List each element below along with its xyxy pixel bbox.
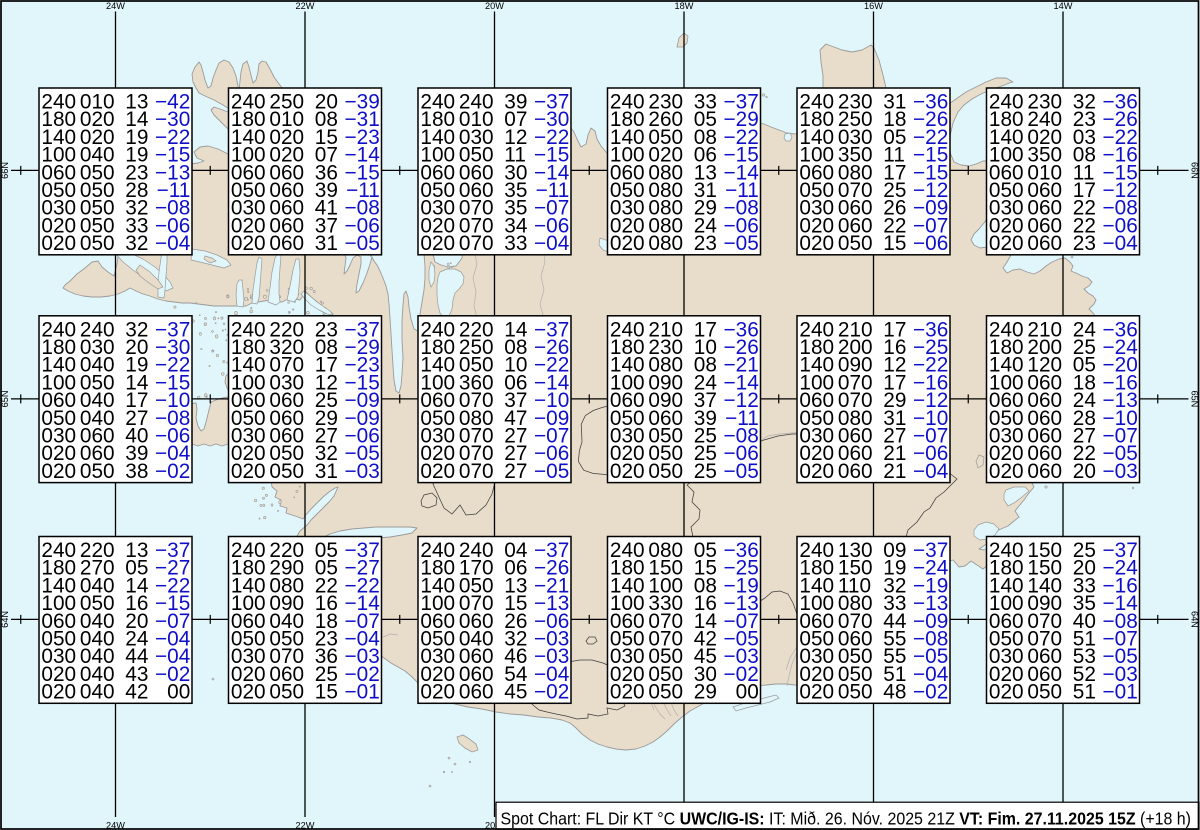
svg-text:−05: −05 xyxy=(534,460,569,483)
svg-text:−04: −04 xyxy=(1103,232,1138,255)
svg-text:33: 33 xyxy=(504,232,527,255)
svg-text:020: 020 xyxy=(231,232,266,255)
svg-text:020: 020 xyxy=(989,681,1024,704)
svg-text:040: 040 xyxy=(80,681,115,704)
svg-text:−01: −01 xyxy=(345,681,380,704)
svg-text:020: 020 xyxy=(231,681,266,704)
svg-text:24W: 24W xyxy=(106,1,125,11)
svg-text:23: 23 xyxy=(1073,232,1096,255)
svg-text:−05: −05 xyxy=(345,232,380,255)
svg-text:−01: −01 xyxy=(1103,681,1138,704)
svg-text:20W: 20W xyxy=(485,1,504,11)
svg-text:050: 050 xyxy=(648,681,683,704)
svg-text:020: 020 xyxy=(610,460,645,483)
svg-text:45: 45 xyxy=(504,681,527,704)
svg-text:14W: 14W xyxy=(1054,1,1073,11)
svg-text:020: 020 xyxy=(799,232,834,255)
svg-text:020: 020 xyxy=(799,681,834,704)
svg-text:050: 050 xyxy=(80,232,115,255)
svg-text:−03: −03 xyxy=(1103,460,1138,483)
svg-text:22W: 22W xyxy=(296,1,315,11)
svg-text:060: 060 xyxy=(838,460,873,483)
svg-text:050: 050 xyxy=(838,681,873,704)
svg-text:51: 51 xyxy=(1073,681,1096,704)
svg-text:32: 32 xyxy=(125,232,148,255)
svg-text:38: 38 xyxy=(125,460,148,483)
svg-text:070: 070 xyxy=(459,460,494,483)
svg-text:060: 060 xyxy=(459,681,494,704)
svg-text:−02: −02 xyxy=(534,681,569,704)
svg-text:050: 050 xyxy=(269,681,304,704)
svg-text:080: 080 xyxy=(648,232,683,255)
svg-text:−03: −03 xyxy=(345,460,380,483)
svg-text:−02: −02 xyxy=(913,681,948,704)
svg-text:020: 020 xyxy=(610,232,645,255)
svg-text:050: 050 xyxy=(648,460,683,483)
svg-text:020: 020 xyxy=(989,232,1024,255)
svg-text:15: 15 xyxy=(883,232,906,255)
svg-text:21: 21 xyxy=(883,460,906,483)
svg-text:070: 070 xyxy=(459,232,494,255)
svg-text:020: 020 xyxy=(799,460,834,483)
svg-text:31: 31 xyxy=(315,232,338,255)
svg-text:25: 25 xyxy=(694,460,717,483)
svg-text:020: 020 xyxy=(231,460,266,483)
svg-text:27: 27 xyxy=(504,460,527,483)
svg-text:−04: −04 xyxy=(913,460,948,483)
svg-text:020: 020 xyxy=(41,460,76,483)
svg-text:16W: 16W xyxy=(864,1,883,11)
svg-text:−06: −06 xyxy=(913,232,948,255)
svg-text:−04: −04 xyxy=(155,232,190,255)
svg-text:020: 020 xyxy=(420,460,455,483)
svg-text:00: 00 xyxy=(167,681,190,704)
svg-text:020: 020 xyxy=(41,232,76,255)
svg-text:−02: −02 xyxy=(155,460,190,483)
svg-text:20: 20 xyxy=(1073,460,1096,483)
svg-text:29: 29 xyxy=(694,681,717,704)
svg-text:−05: −05 xyxy=(724,460,759,483)
svg-text:020: 020 xyxy=(610,681,645,704)
svg-text:050: 050 xyxy=(838,232,873,255)
svg-text:050: 050 xyxy=(1027,681,1062,704)
svg-text:Spot Chart: FL Dir KT °C UWC/I: Spot Chart: FL Dir KT °C UWC/IG-IS: IT: … xyxy=(501,809,1192,829)
svg-text:48: 48 xyxy=(883,681,906,704)
svg-text:23: 23 xyxy=(694,232,717,255)
svg-text:020: 020 xyxy=(989,460,1024,483)
svg-text:−04: −04 xyxy=(534,232,569,255)
svg-text:42: 42 xyxy=(125,681,148,704)
svg-text:020: 020 xyxy=(41,681,76,704)
svg-text:020: 020 xyxy=(420,232,455,255)
svg-text:020: 020 xyxy=(420,681,455,704)
svg-text:31: 31 xyxy=(315,460,338,483)
svg-text:18W: 18W xyxy=(675,1,694,11)
svg-text:060: 060 xyxy=(1027,460,1062,483)
svg-text:050: 050 xyxy=(269,460,304,483)
svg-text:−05: −05 xyxy=(724,232,759,255)
svg-text:00: 00 xyxy=(736,681,759,704)
svg-text:15: 15 xyxy=(315,681,338,704)
svg-text:050: 050 xyxy=(80,460,115,483)
svg-text:060: 060 xyxy=(269,232,304,255)
svg-text:060: 060 xyxy=(1027,232,1062,255)
